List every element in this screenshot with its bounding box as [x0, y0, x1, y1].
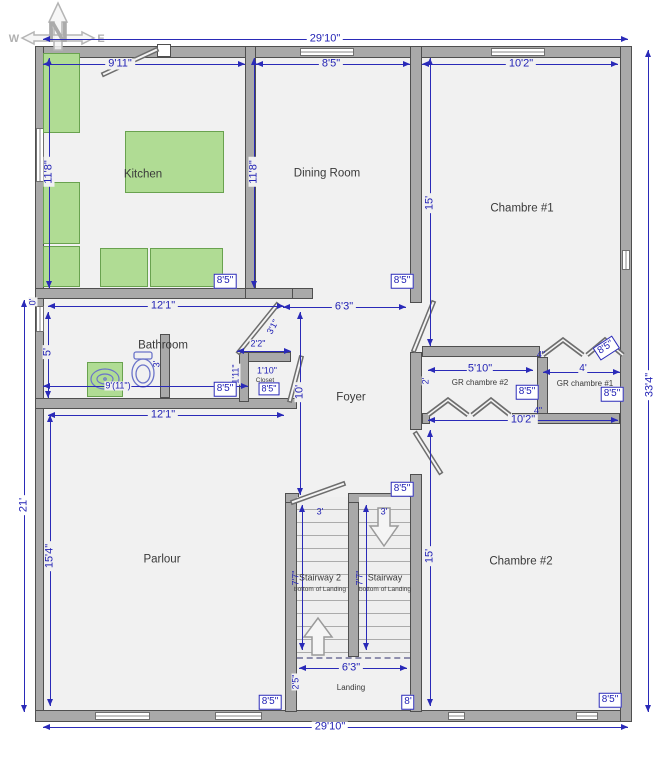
dim-kitchen-h: 11'8" — [44, 157, 55, 187]
dim-stair-w-left: 3' — [316, 508, 325, 517]
dim-kitchen-w: 9'11" — [105, 59, 135, 70]
window — [576, 712, 598, 720]
room-label-stairway2: Stairway 2 — [299, 574, 341, 583]
dim-dining-w: 8'5" — [319, 59, 343, 70]
window — [300, 48, 354, 56]
dim-line-chambre2-h — [430, 430, 431, 706]
window — [215, 712, 262, 720]
window — [95, 712, 150, 720]
stairway-note: bottom of Landing — [355, 587, 415, 594]
room-label-stairway: Stairway — [368, 574, 403, 583]
window — [491, 48, 545, 56]
dim-parlour-h: 15'4" — [45, 541, 56, 571]
bathroom-vanity — [87, 362, 123, 397]
dim-foyer-w: 6'3" — [332, 302, 356, 313]
wall-dining-bottom — [245, 288, 293, 299]
ceiling-badge-landing: 8' — [401, 695, 414, 710]
room-label-chambre1: Chambre #1 — [490, 203, 553, 215]
ceiling-badge-dining: 8'5" — [391, 274, 414, 289]
ceiling-badge-parlour: 8'5" — [259, 695, 282, 710]
window — [448, 712, 465, 720]
ceiling-badge-kitchen: 8'5" — [214, 274, 237, 289]
wall-gr-top — [422, 346, 540, 357]
dim-parlour-w: 12'1" — [148, 410, 178, 421]
dim-gr1-w: 4' — [578, 364, 587, 374]
window — [622, 250, 630, 270]
wall-chambre1-left — [410, 46, 422, 303]
dim-closet-w: 2'2" — [250, 340, 267, 349]
wall-right — [620, 46, 632, 722]
room-label-parlour: Parlour — [143, 554, 180, 566]
ceiling-badge-stairs: 8'5" — [391, 482, 414, 497]
room-label-gr1: GR chambre #1 — [557, 380, 613, 388]
dim-gr-row-w: 10'2" — [508, 415, 538, 426]
room-label-landing: Landing — [337, 684, 365, 692]
ceiling-badge-gr1: 8'5" — [601, 387, 624, 402]
dim-bath-w: 12'1" — [148, 301, 178, 312]
compass-west-label: W — [9, 33, 20, 45]
wall-closet-left — [239, 352, 249, 402]
dim-left-lower: 21' — [19, 495, 30, 515]
dim-toilet: 3' — [153, 360, 162, 369]
dim-landing-w: 6'3" — [339, 663, 363, 674]
dim-total-top: 29'10" — [307, 34, 343, 45]
dim-closet-d: 1'10" — [256, 367, 278, 376]
ceiling-badge-closet: 8'5" — [259, 382, 280, 395]
dim-chambre1-w: 10'2" — [506, 59, 536, 70]
dim-bath-h: 5' — [43, 345, 54, 359]
room-label-gr2: GR chambre #2 — [452, 379, 508, 387]
kitchen-counter — [150, 248, 223, 287]
dim-landing-d: 2'5" — [292, 674, 301, 691]
dim-total-right: 33'4" — [645, 370, 656, 400]
room-label-foyer: Foyer — [336, 392, 365, 404]
stairway2-note: bottom of Landing — [290, 587, 350, 594]
compass-rose — [22, 3, 94, 50]
dim-total-bottom: 29'10" — [312, 722, 348, 733]
kitchen-counter — [100, 248, 148, 287]
dim-line-closet-w — [237, 351, 291, 352]
dim-gap-top: 4" — [536, 351, 546, 360]
dim-line-kitchen-w — [43, 64, 245, 65]
ceiling-badge-bathroom: 8'5" — [214, 382, 237, 397]
dim-stair-len-right: 7'7" — [356, 570, 365, 587]
floor-plan: N W E — [0, 0, 672, 771]
wall-foyer-gr — [410, 352, 422, 430]
kitchen-island — [125, 131, 224, 193]
dim-gr2-d: 2' — [422, 377, 431, 386]
window — [36, 306, 44, 332]
room-label-bathroom: Bathroom — [138, 340, 188, 352]
door-frame — [157, 44, 171, 57]
dim-gr2-w: 5'10" — [467, 364, 493, 375]
room-label-dining: Dining Room — [294, 168, 360, 180]
dim-bath-inner: 9'(11") — [104, 382, 131, 391]
room-label-closet: Closet — [256, 378, 274, 385]
room-label-chambre2: Chambre #2 — [489, 556, 552, 568]
dim-stair-w-right: 3' — [380, 508, 389, 517]
dim-chambre1-h: 15' — [425, 193, 436, 213]
dim-chambre2-h: 15' — [425, 546, 436, 566]
wall-bathroom-bottom — [35, 398, 297, 409]
ceiling-badge-gr2: 8'5" — [516, 385, 539, 400]
dim-bath-zero: 0' — [29, 298, 38, 307]
dim-foyer-h: 10' — [295, 382, 306, 402]
room-label-kitchen: Kitchen — [124, 169, 162, 181]
ceiling-badge-chambre2: 8'5" — [599, 693, 622, 708]
compass-north-label: N — [47, 16, 69, 49]
dim-dining-h: 11'8" — [249, 157, 260, 187]
dim-line-foyer-h — [300, 312, 301, 495]
